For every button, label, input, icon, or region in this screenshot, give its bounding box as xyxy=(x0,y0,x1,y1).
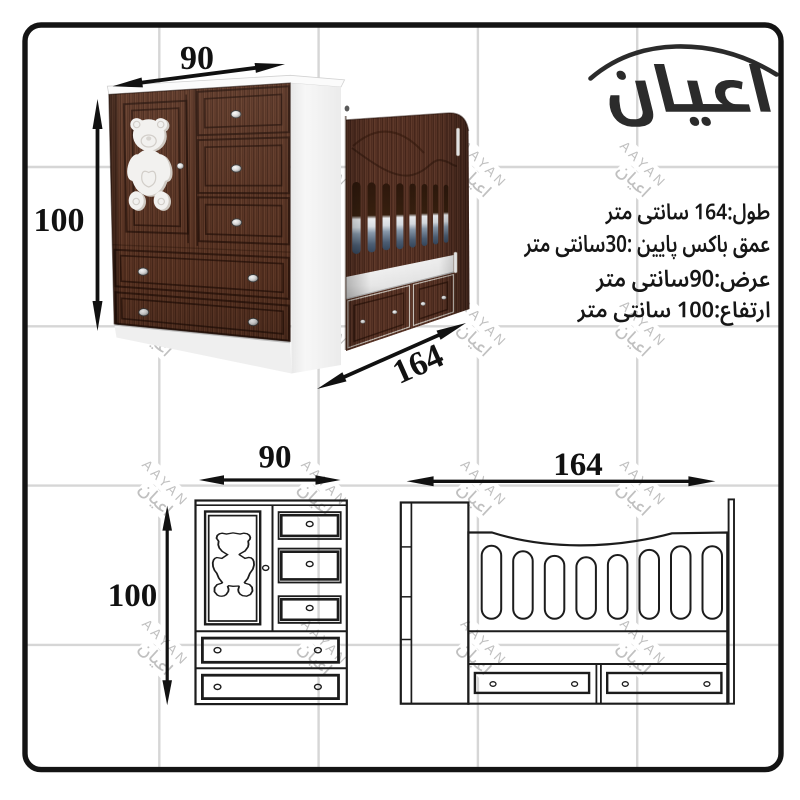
svg-text:100: 100 xyxy=(108,578,158,614)
svg-text:90: 90 xyxy=(180,40,214,77)
svg-text:164: 164 xyxy=(553,447,603,483)
svg-text:164: 164 xyxy=(387,337,449,392)
svg-text:90: 90 xyxy=(259,440,292,476)
svg-text:100: 100 xyxy=(34,202,85,239)
